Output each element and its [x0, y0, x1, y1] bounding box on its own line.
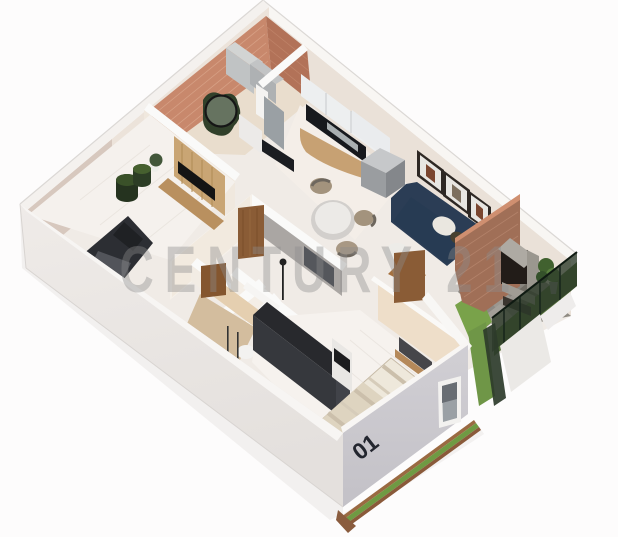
svg-text:CENTURY 21: CENTURY 21 [120, 233, 521, 306]
